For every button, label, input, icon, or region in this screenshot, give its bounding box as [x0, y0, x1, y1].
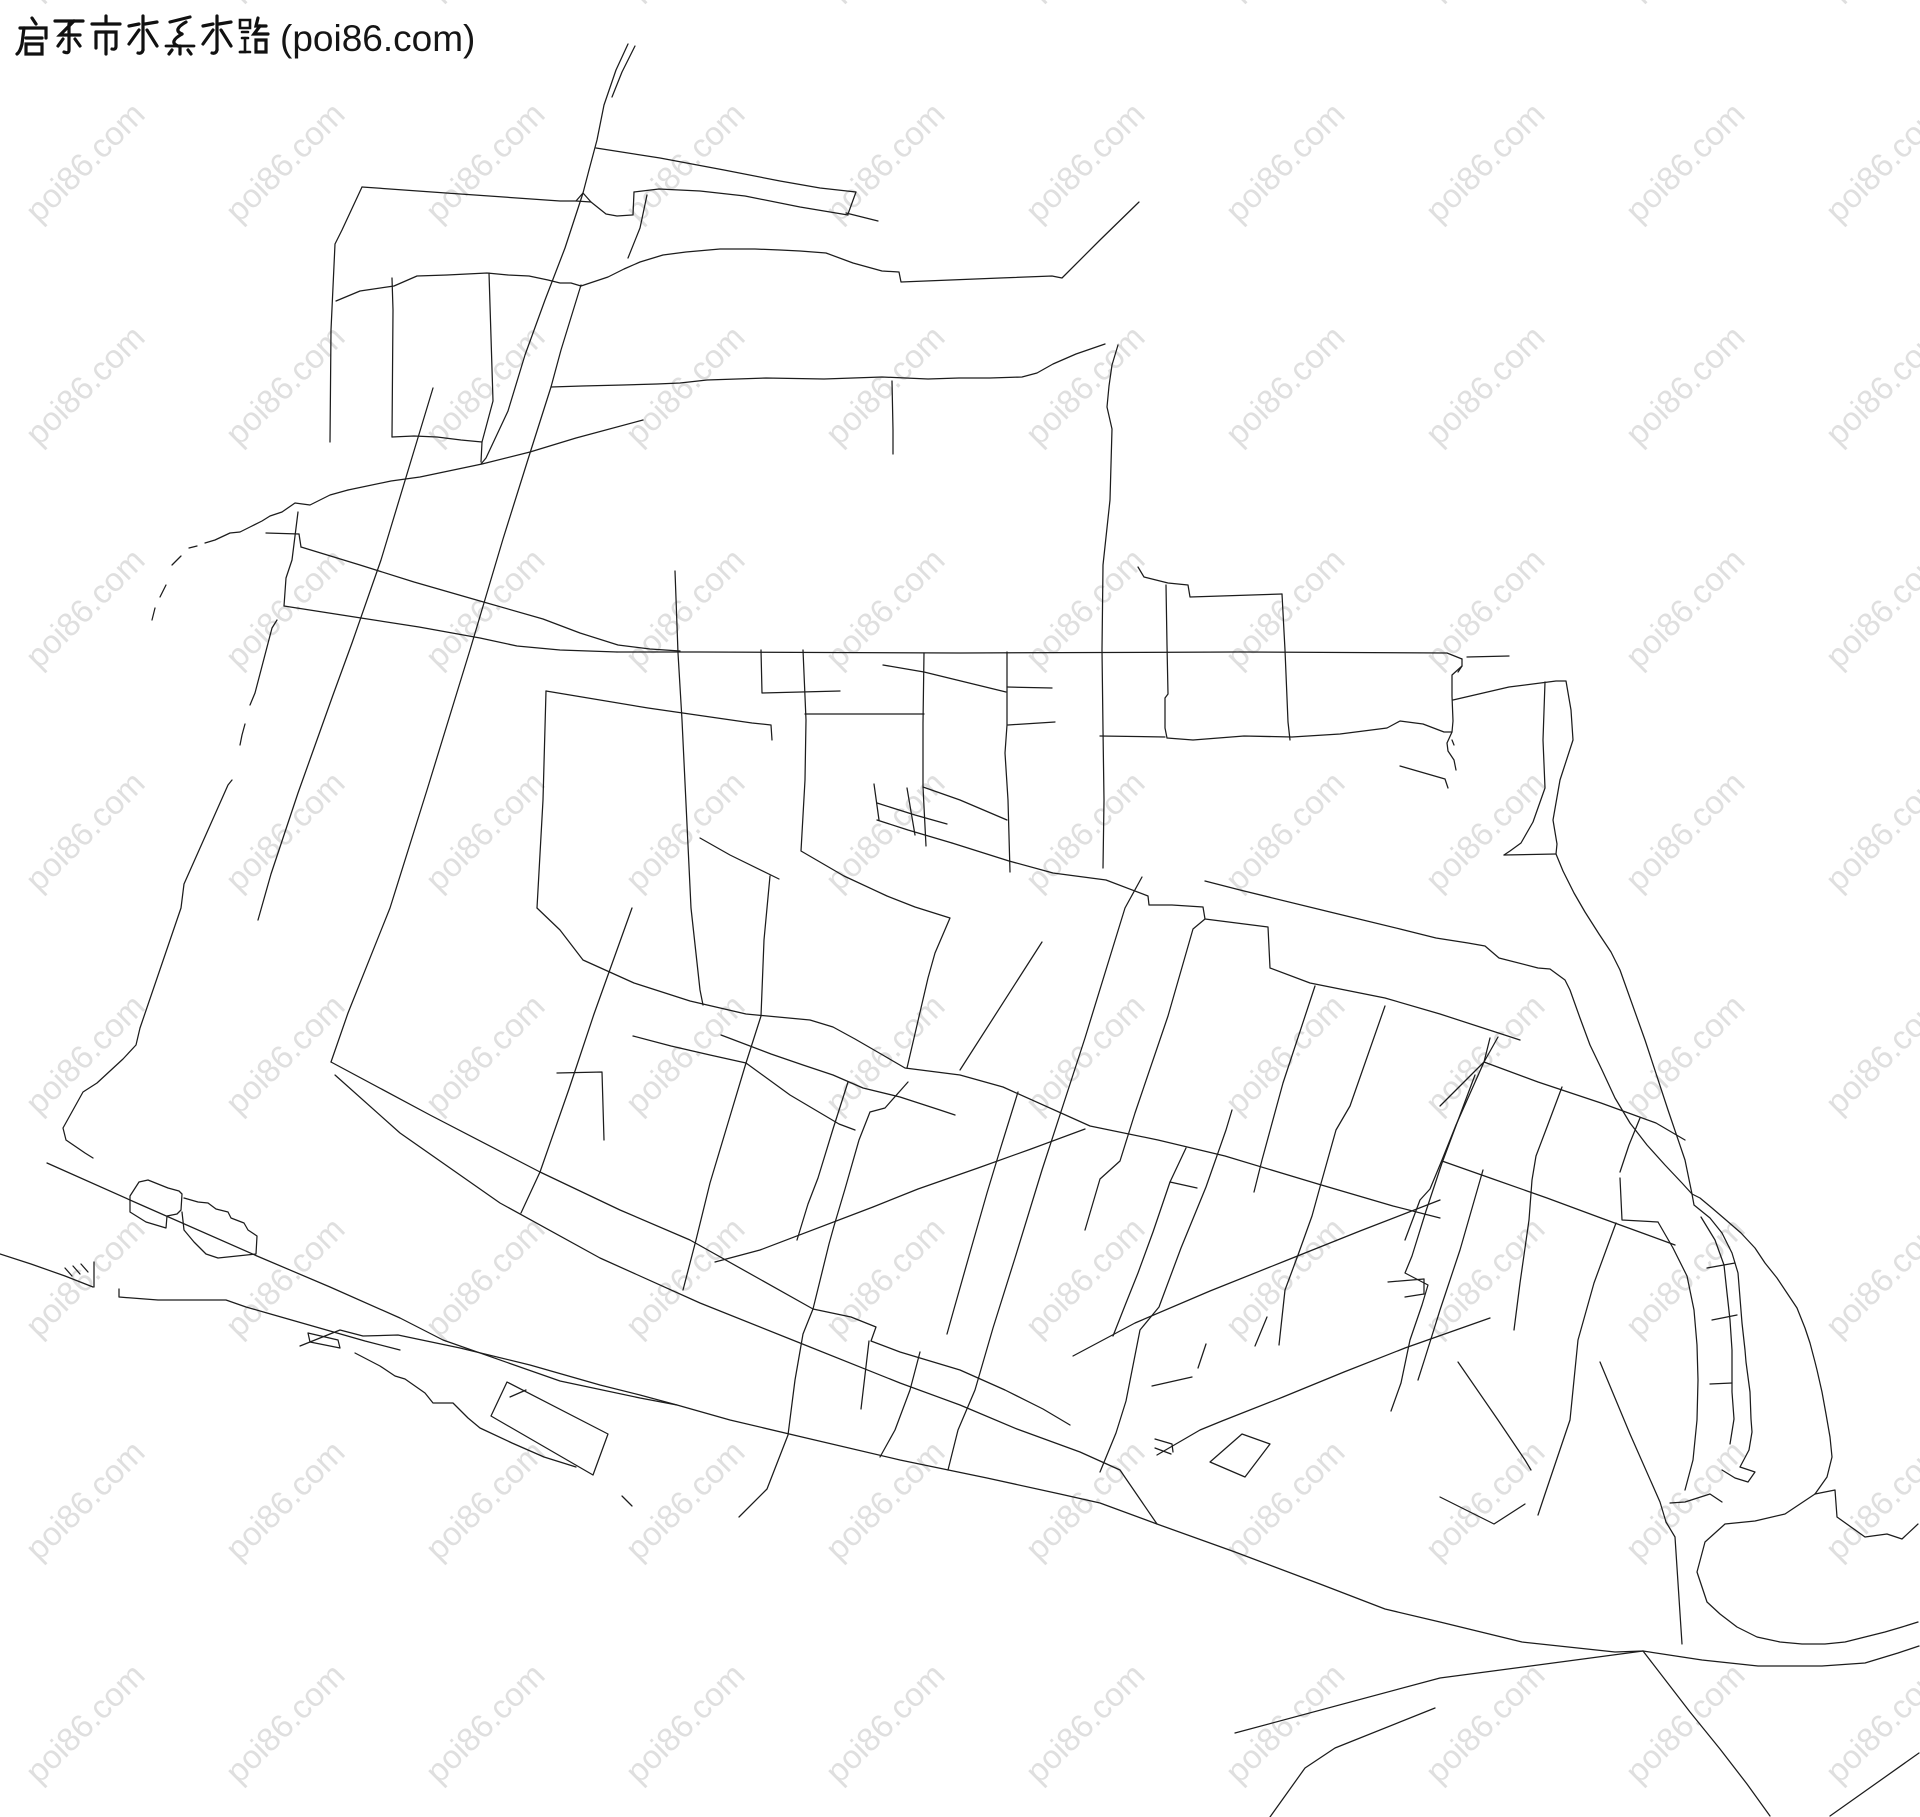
svg-text:(poi86.com): (poi86.com) — [280, 18, 475, 59]
